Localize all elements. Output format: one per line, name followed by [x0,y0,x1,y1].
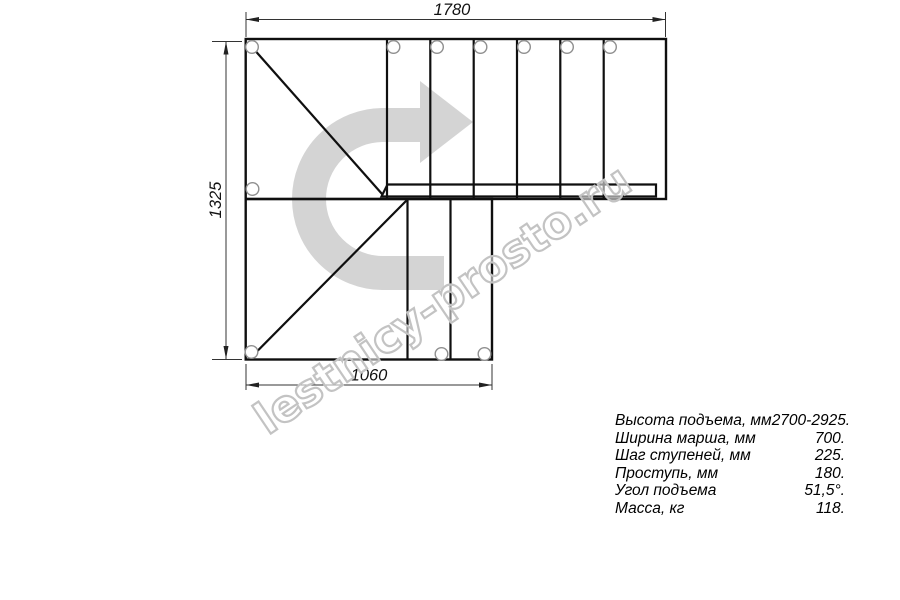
spec-label: Ширина марша, мм [615,430,756,448]
direction-arrow [309,81,473,273]
spec-value: 180. [815,465,845,483]
screw-hole-icon [604,41,617,54]
dimension-top: 1780 [246,1,666,37]
screw-hole-icon [245,346,258,359]
spec-label: Проступь, мм [615,465,718,483]
spec-row: Ширина марша, мм 700. [615,430,845,448]
spec-row: Проступь, мм 180. [615,465,845,483]
screw-hole-icon [435,348,448,361]
spec-row: Высота подъема, мм 2700-2925. [615,412,845,430]
dimension-arrow-icon [224,42,229,55]
spec-row: Масса, кг 118. [615,500,845,518]
dimension-arrow-icon [246,17,259,22]
spec-value: 2700-2925. [772,412,850,430]
screw-hole-icon [246,41,259,54]
spec-value: 225. [815,447,845,465]
dimension-left-value: 1325 [207,181,225,219]
spec-value: 51,5°. [804,482,845,500]
stair-plan-canvas: 1780 1325 1060 lestnicy-prosto.ru Высота… [0,0,900,600]
dimension-arrow-icon [224,346,229,359]
spec-row: Шаг ступеней, мм 225. [615,447,845,465]
dimension-top-value: 1780 [434,1,472,19]
dimension-arrow-icon [246,383,259,388]
screw-hole-icon [474,41,487,54]
direction-arrow-head [420,81,473,163]
screw-hole-icon [431,41,444,54]
screw-hole-icon [478,348,491,361]
spec-list: Высота подъема, мм 2700-2925. Ширина мар… [615,412,845,518]
spec-label: Высота подъема, мм [615,412,772,430]
screw-hole-icon [246,183,259,196]
spec-label: Шаг ступеней, мм [615,447,751,465]
screw-hole-icon [387,41,400,54]
dimension-arrow-icon [479,383,492,388]
spec-value: 118. [816,500,845,518]
spec-value: 700. [815,430,845,448]
spec-row: Угол подъема 51,5°. [615,482,845,500]
screw-hole-icon [561,41,574,54]
screw-hole-icon [518,41,531,54]
spec-label: Масса, кг [615,500,684,518]
dimension-left: 1325 [207,42,242,360]
spec-label: Угол подъема [615,482,716,500]
dimension-arrow-icon [653,17,666,22]
